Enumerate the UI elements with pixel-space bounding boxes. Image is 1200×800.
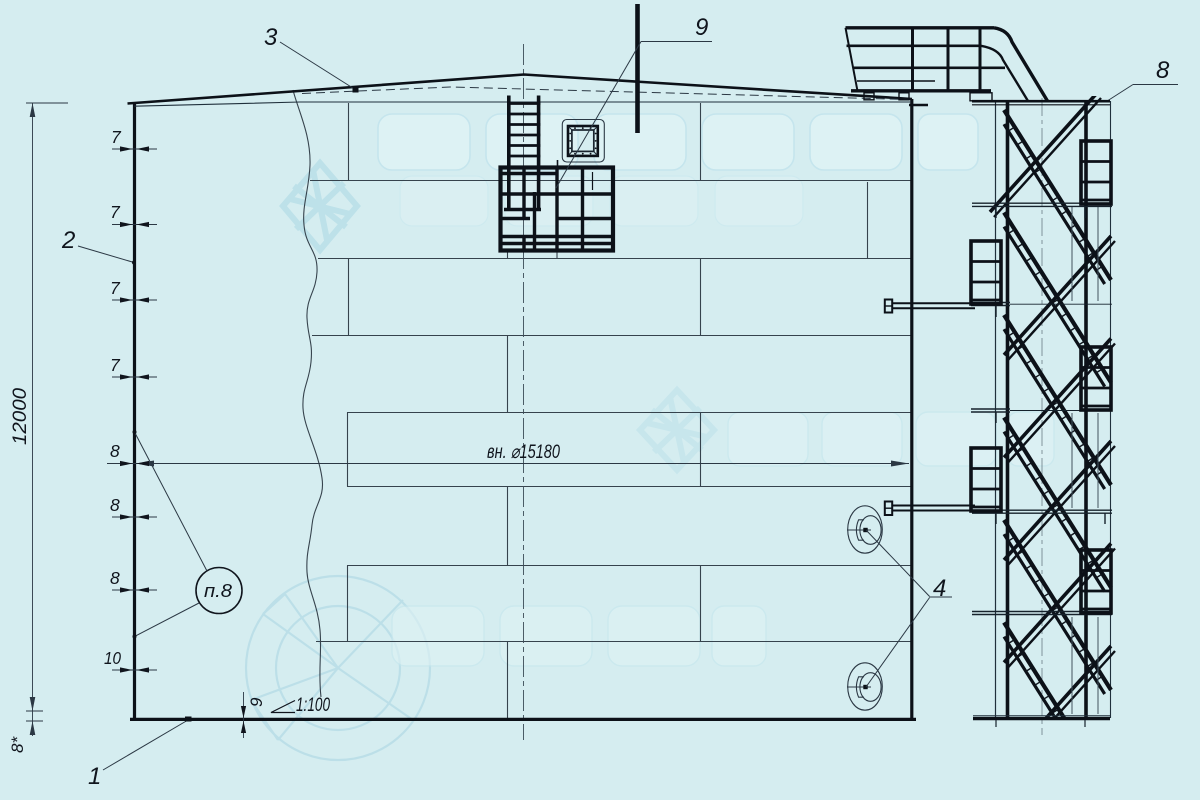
svg-text:7: 7 — [111, 127, 122, 147]
svg-text:8: 8 — [1156, 57, 1170, 84]
svg-text:9: 9 — [695, 14, 708, 41]
svg-text:7: 7 — [110, 278, 121, 298]
svg-text:1: 1 — [88, 763, 101, 790]
svg-text:8: 8 — [110, 441, 120, 461]
svg-text:12000: 12000 — [10, 388, 31, 445]
svg-text:1:100: 1:100 — [296, 695, 330, 716]
svg-text:7: 7 — [110, 355, 121, 375]
svg-text:2: 2 — [61, 227, 75, 254]
svg-text:8*: 8* — [8, 736, 27, 753]
svg-text:п.8: п.8 — [204, 581, 232, 601]
svg-text:7: 7 — [110, 202, 121, 222]
svg-text:10: 10 — [104, 648, 121, 668]
svg-text:8: 8 — [110, 495, 120, 515]
svg-text:3: 3 — [264, 24, 278, 51]
svg-text:9: 9 — [247, 697, 266, 707]
svg-text:8: 8 — [110, 568, 120, 588]
svg-text:вн. ⌀15180: вн. ⌀15180 — [487, 442, 560, 463]
svg-text:4: 4 — [933, 575, 946, 602]
